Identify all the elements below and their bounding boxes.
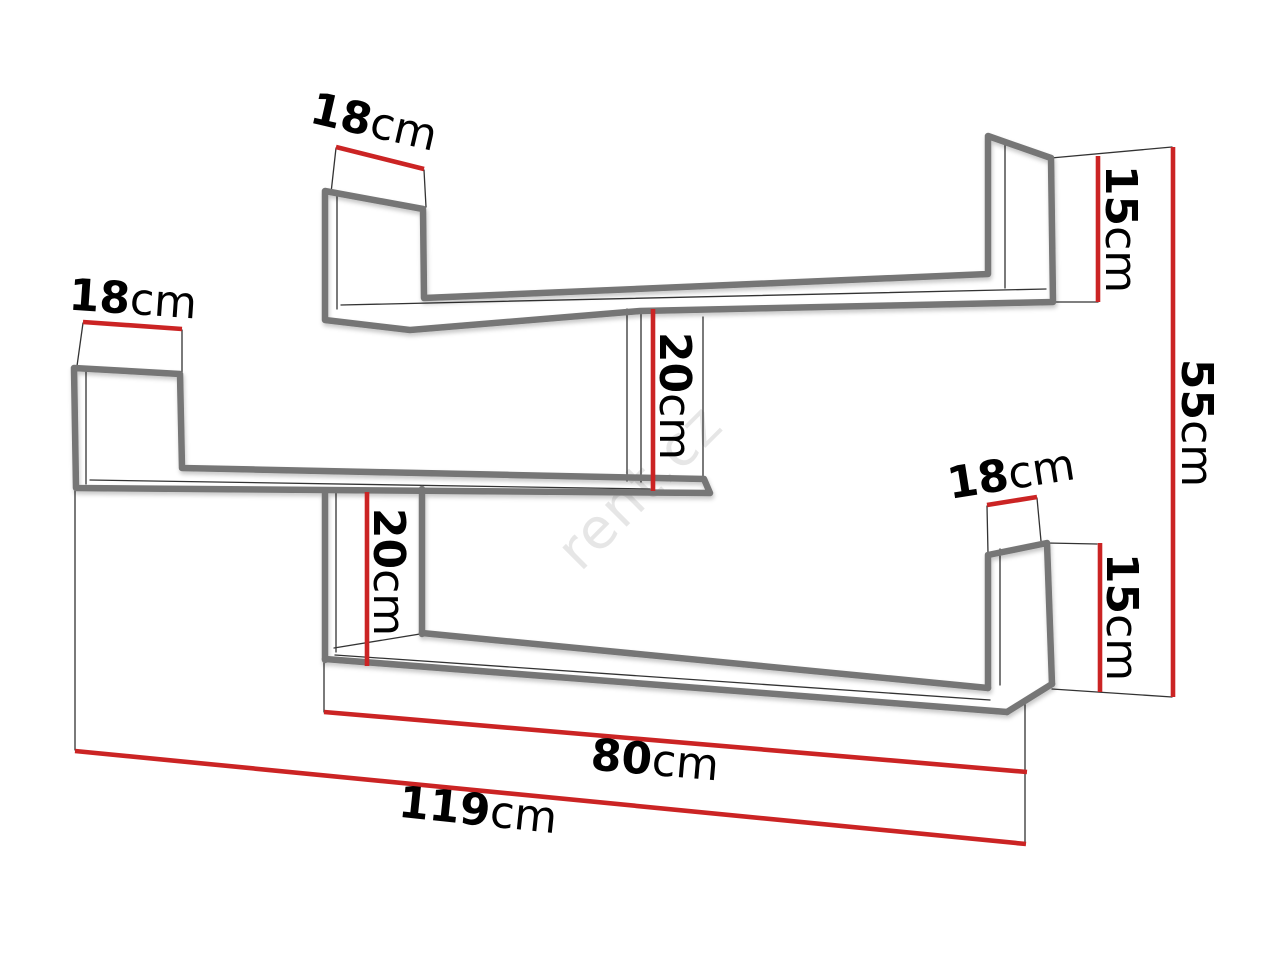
shelf-front-edges bbox=[74, 136, 1053, 712]
dim-label-number: 55 bbox=[1172, 359, 1223, 420]
dim-label-unit: cm bbox=[365, 96, 442, 161]
dim-label-number: 18 bbox=[944, 449, 1012, 509]
shelf-back-edges bbox=[86, 144, 1046, 700]
bottom-board-top-front-edge bbox=[422, 633, 988, 688]
dim-label-unit: cm bbox=[1172, 420, 1223, 487]
dim-label-unit: cm bbox=[1096, 226, 1147, 293]
dim-label-bottom-shelf-width: 80cm bbox=[589, 729, 721, 791]
dim-label-unit: cm bbox=[128, 273, 198, 329]
dim-label-unit: cm bbox=[488, 786, 560, 844]
dim-label-lower-divider-height: 20cm bbox=[364, 508, 415, 636]
dim-label-number: 18 bbox=[306, 83, 377, 146]
ext-br-depth-left bbox=[987, 506, 988, 553]
dim-label-number: 119 bbox=[396, 776, 493, 836]
dim-label-number: 15 bbox=[1097, 553, 1148, 614]
bottom-board-right-bevel bbox=[1007, 684, 1052, 712]
ext-bottom-right-upper bbox=[1047, 543, 1097, 544]
bottom-right-panel-outline bbox=[988, 543, 1052, 688]
bottom-board-bottom-front-edge bbox=[325, 659, 1007, 712]
ext-top-right-upper bbox=[1051, 147, 1172, 158]
dim-label-unit: cm bbox=[1004, 439, 1078, 500]
dim-label-number: 80 bbox=[589, 729, 654, 785]
dim-label-bottom-right-depth: 18cm bbox=[944, 439, 1079, 509]
dim-label-top-right-end-height: 15cm bbox=[1096, 165, 1147, 293]
dim-label-top-shelf-depth: 18cm bbox=[306, 83, 442, 162]
dim-label-unit: cm bbox=[1097, 614, 1148, 681]
dim-label-upper-divider-height: 20cm bbox=[650, 332, 701, 460]
dim-label-middle-shelf-depth: 18cm bbox=[67, 269, 199, 329]
dim-label-unit: cm bbox=[650, 734, 721, 791]
ext-left-depth-left bbox=[77, 323, 83, 366]
dim-label-number: 20 bbox=[364, 508, 415, 569]
ext-top-depth-left bbox=[331, 148, 336, 193]
ext-top-depth-right bbox=[424, 170, 426, 207]
dim-label-overall-width: 119cm bbox=[396, 776, 559, 843]
diagram-canvas: rent.cz bbox=[0, 0, 1280, 960]
ext-br-depth-right bbox=[1037, 498, 1041, 541]
dim-label-bottom-right-height: 15cm bbox=[1097, 553, 1148, 681]
dim-label-number: 20 bbox=[650, 332, 701, 393]
middle-shelf-outline bbox=[74, 368, 710, 493]
ext-bottom-right-lower bbox=[1052, 689, 1172, 697]
dim-label-number: 18 bbox=[67, 269, 132, 324]
top-shelf-outline bbox=[325, 136, 1053, 330]
shelf-dimension-diagram: rent.cz bbox=[0, 0, 1280, 960]
dim-label-unit: cm bbox=[650, 393, 701, 460]
dim-label-overall-height: 55cm bbox=[1172, 359, 1223, 487]
dim-label-unit: cm bbox=[364, 569, 415, 636]
dim-label-number: 15 bbox=[1096, 165, 1147, 226]
